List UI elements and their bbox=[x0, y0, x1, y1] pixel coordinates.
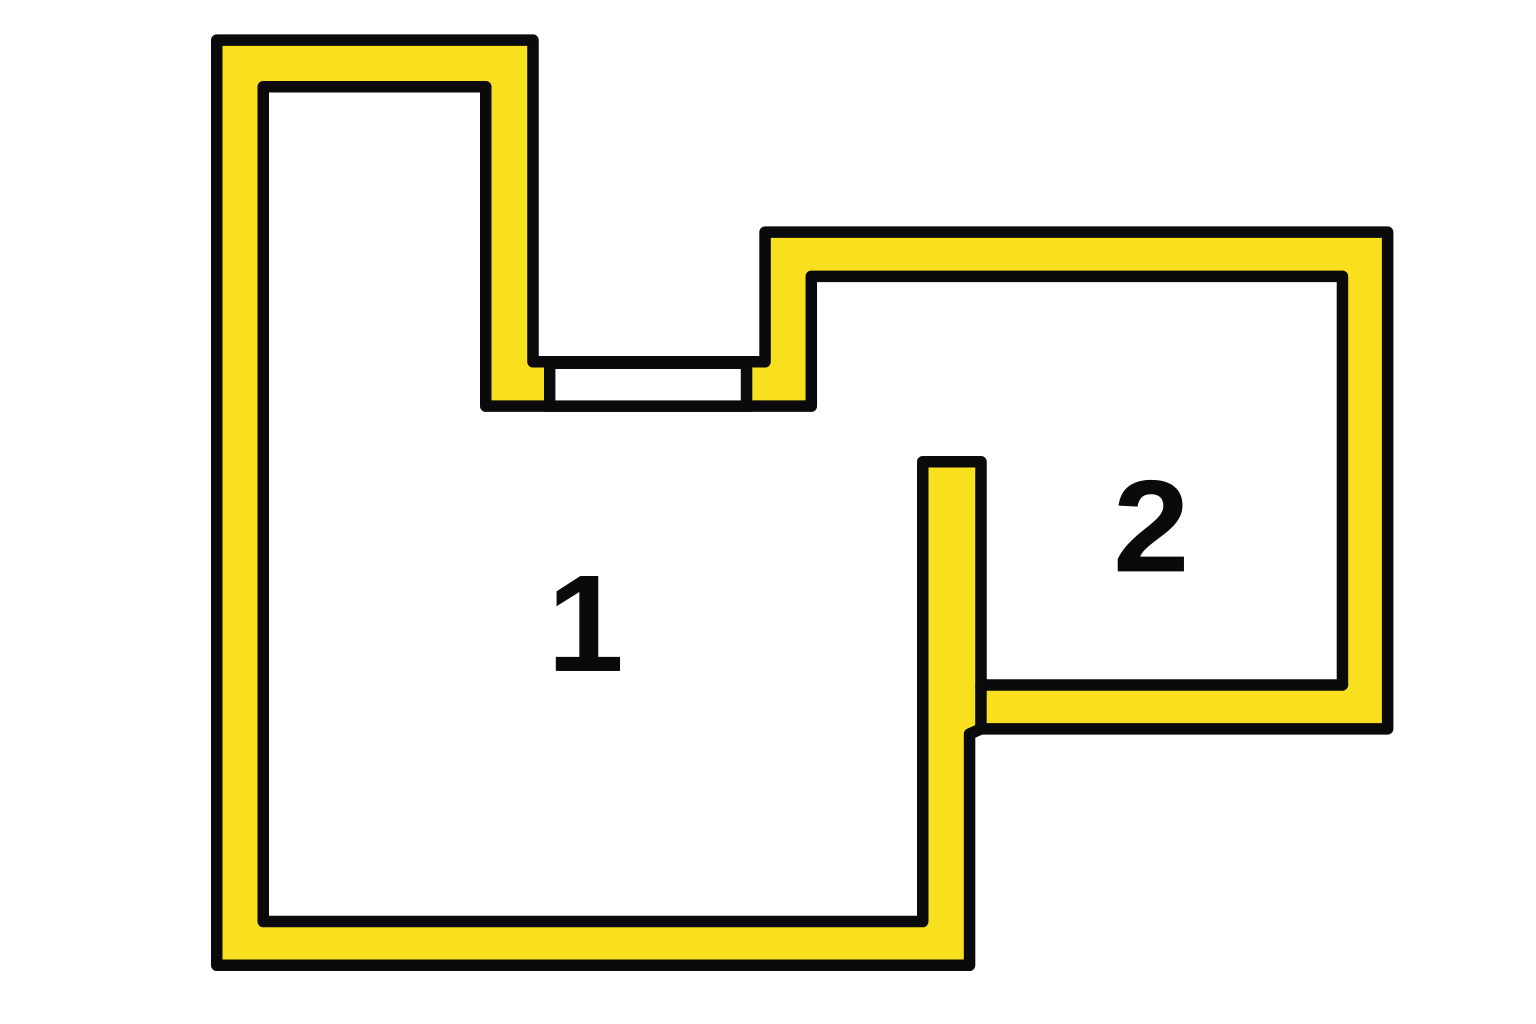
svg-text:1: 1 bbox=[547, 547, 624, 701]
svg-text:2: 2 bbox=[1113, 453, 1190, 599]
